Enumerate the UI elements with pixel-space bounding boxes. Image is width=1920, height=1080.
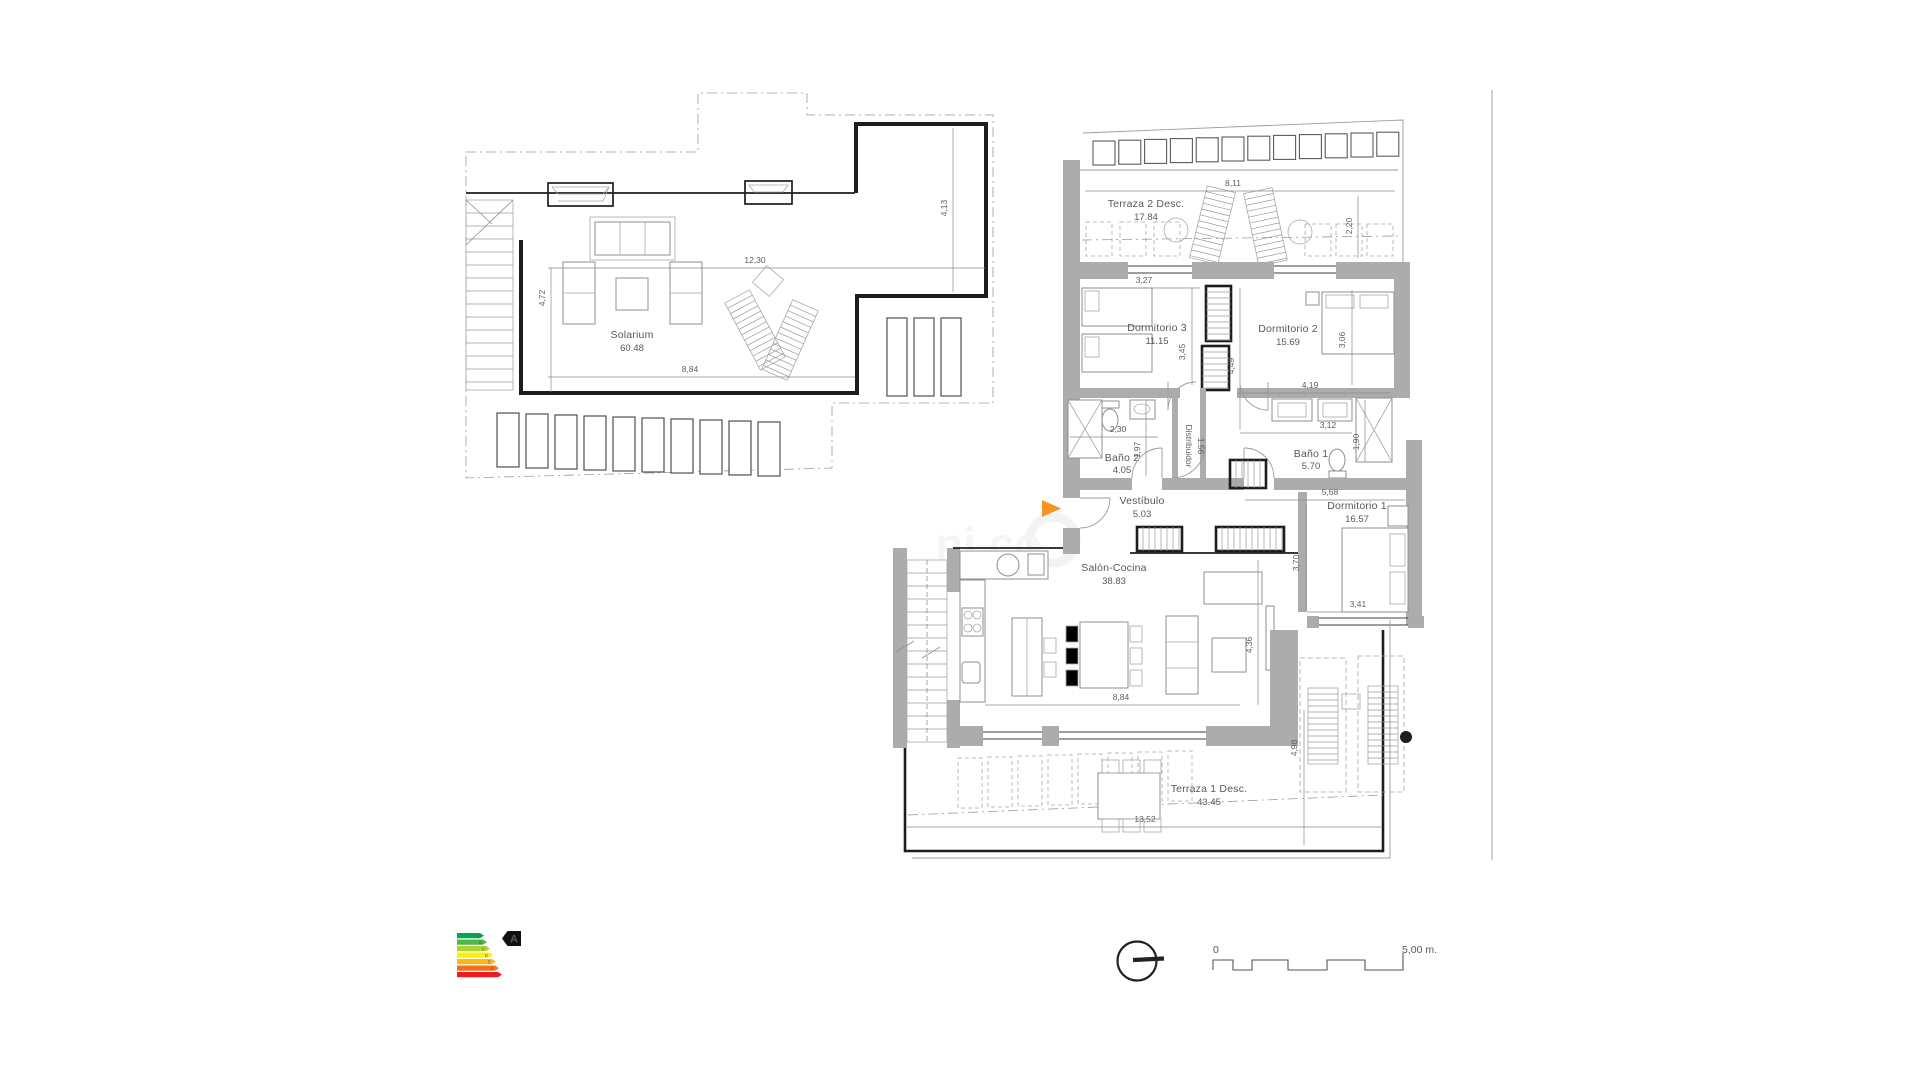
kitchen-counter-left (960, 580, 985, 702)
energy-letter-a: A (476, 933, 479, 938)
toilet-bano1 (1329, 449, 1346, 478)
room-label-bano2: Baño 2 (1105, 452, 1139, 464)
solarium-loungers (725, 266, 818, 381)
dim-pasillo-depth: 4,49 (1226, 357, 1236, 374)
kitchen-sink-round (997, 554, 1019, 576)
window-dorm3 (1128, 266, 1192, 273)
energy-letter-g: G (493, 972, 497, 977)
window-dorm1 (1319, 618, 1408, 625)
dim-dorm2-width: 4,19 (1302, 380, 1319, 390)
terraza2-loungers (1189, 186, 1287, 266)
terraza1-loungers (1300, 656, 1412, 792)
dim-bano1-width: 3,12 (1320, 420, 1337, 430)
compass-icon (1118, 942, 1165, 981)
scale-bar: 0 5,00 m. (1213, 944, 1437, 970)
energy-letter-e: E (488, 959, 491, 964)
dining-table: <"> (1066, 622, 1142, 688)
kitchen-counter-top (960, 551, 1048, 579)
vestibulo: Vestíbulo 5.03 (1042, 492, 1307, 612)
dim-dorm1-bottom: 3,41 (1350, 599, 1367, 609)
dim-dorm1-width: 5,68 (1322, 487, 1339, 497)
dim-terraza1-depth: 4,98 (1289, 739, 1299, 756)
pergola-slats-bottom (497, 413, 780, 476)
room-label-bano1: Baño 1 (1294, 448, 1328, 460)
energy-band-c (457, 946, 490, 951)
washbasin-bano1-2 (1318, 399, 1352, 421)
terraza2-pergola (1093, 132, 1399, 165)
pergola-slats-right (887, 318, 961, 396)
wardrobe-column: 4,49 (1202, 286, 1240, 430)
window-salon-1 (983, 732, 1042, 739)
room-label-salon: Salón-Cocina (1081, 562, 1146, 574)
shower-bano2 (1068, 400, 1102, 458)
washbasin-bano2 (1130, 400, 1155, 419)
washbasin-bano1-1 (1272, 399, 1312, 421)
dim-terraza1-width: 13,52 (1134, 814, 1156, 824)
coffee-table (1212, 638, 1246, 672)
scale-end: 5,00 m. (1402, 944, 1437, 956)
dim-dorm3-depth: 3,45 (1177, 343, 1187, 360)
energy-letter-b: B (479, 940, 482, 945)
floorplan-page: { "plan": { "rooms": { "solarium": {"nam… (0, 0, 1920, 1080)
dim-dorm3-width: 3,27 (1136, 275, 1153, 285)
scale-zero: 0 (1213, 944, 1219, 956)
room-area-terraza2: 17.84 (1134, 212, 1158, 223)
room-label-dorm1: Dormitorio 1 (1327, 500, 1387, 512)
dim-solarium-inner-width: 8,84 (682, 364, 699, 374)
dim-dorm1-depth: 3,70 (1291, 554, 1301, 571)
bed-dorm3-1 (1082, 288, 1152, 326)
hob-icon (962, 608, 983, 636)
room-area-bano2: 4.05 (1113, 465, 1132, 476)
shower-bano1 (1356, 398, 1392, 462)
solarium-plan: 12,30 4,72 8,84 4,13 Solarium 60.48 (466, 93, 993, 478)
dim-salon-width: 8,84 (1113, 692, 1130, 702)
room-area-bano1: 5.70 (1302, 461, 1321, 472)
room-area-solarium: 60.48 (620, 343, 644, 354)
room-area-terraza1: 43.45 (1197, 797, 1221, 808)
room-label-dorm2: Dormitorio 2 (1258, 323, 1318, 335)
room-area-dorm3: 11.15 (1145, 336, 1168, 347)
dim-solarium-depth: 4,72 (537, 289, 547, 306)
sideboard (1204, 572, 1262, 604)
room-area-vestibulo: 5.03 (1133, 509, 1152, 520)
room-area-dorm1: 16.57 (1345, 514, 1369, 525)
dim-solarium-width: 12,30 (744, 255, 766, 265)
dim-solarium-side: 4,13 (939, 199, 949, 216)
room-label-solarium: Solarium (610, 329, 653, 341)
kitchen-sink-small (962, 662, 980, 683)
dim-salon-depth: 4,36 (1244, 636, 1254, 653)
dim-bano2-width: 2,30 (1110, 424, 1127, 434)
room-label-dorm3: Dormitorio 3 (1127, 322, 1187, 334)
skylight-1 (548, 183, 613, 206)
stairs-solarium (466, 200, 513, 390)
salon-cocina: <"> 8,84 4,36 Salón-Cocina (893, 548, 1298, 748)
energy-band-a (457, 933, 484, 938)
window-salon-2 (1059, 732, 1206, 739)
bed-dorm3-2 (1082, 334, 1152, 372)
energy-rating-value: A (510, 934, 518, 946)
floorplan-drawing: ni co (0, 0, 1920, 1080)
dim-terraza2-width: 8,11 (1225, 178, 1241, 188)
bed-dorm2 (1306, 292, 1394, 354)
room-area-salon: 38.83 (1102, 576, 1126, 587)
room-label-distribuidor: Distribuidor (1184, 425, 1194, 468)
main-plan: 8,11 2,20 Terraza 2 Desc. 17.84 3,27 3,4… (893, 90, 1492, 860)
room-label-terraza1: Terraza 1 Desc. (1171, 783, 1248, 795)
dim-terraza2-depth: 2,20 (1344, 217, 1354, 234)
room-label-terraza2: Terraza 2 Desc. (1108, 198, 1185, 210)
room-area-dorm2: 15.69 (1276, 337, 1300, 348)
energy-letter-f: F (491, 966, 494, 971)
dim-bano1-depth: 1,90 (1351, 433, 1361, 450)
dim-dorm2-depth: 3,06 (1337, 331, 1347, 348)
room-label-vestibulo: Vestíbulo (1120, 495, 1165, 507)
terraza1-light (1400, 731, 1412, 743)
window-dorm2 (1274, 266, 1336, 273)
energy-band-b (457, 940, 487, 945)
kitchen-island (1012, 618, 1056, 696)
energy-rating-label: A B C D E F G A (457, 931, 521, 977)
vestibule-wardrobes (1130, 527, 1298, 553)
solarium-sofa-set (563, 217, 702, 324)
